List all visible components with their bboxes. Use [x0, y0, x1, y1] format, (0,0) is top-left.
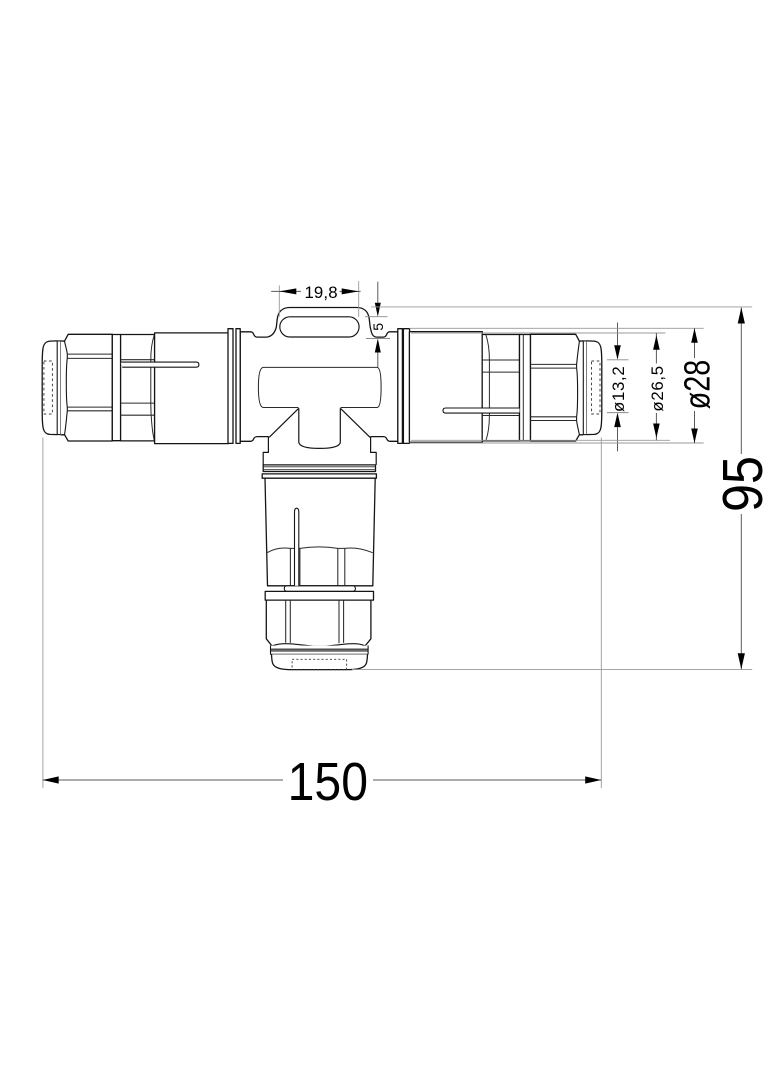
- svg-text:5: 5: [371, 323, 387, 331]
- svg-text:150: 150: [288, 752, 368, 812]
- svg-text:ø13,2: ø13,2: [609, 366, 628, 412]
- svg-text:ø28: ø28: [676, 360, 717, 410]
- svg-text:19,8: 19,8: [304, 283, 337, 302]
- svg-text:ø26,5: ø26,5: [648, 365, 667, 411]
- svg-text:95: 95: [712, 456, 774, 512]
